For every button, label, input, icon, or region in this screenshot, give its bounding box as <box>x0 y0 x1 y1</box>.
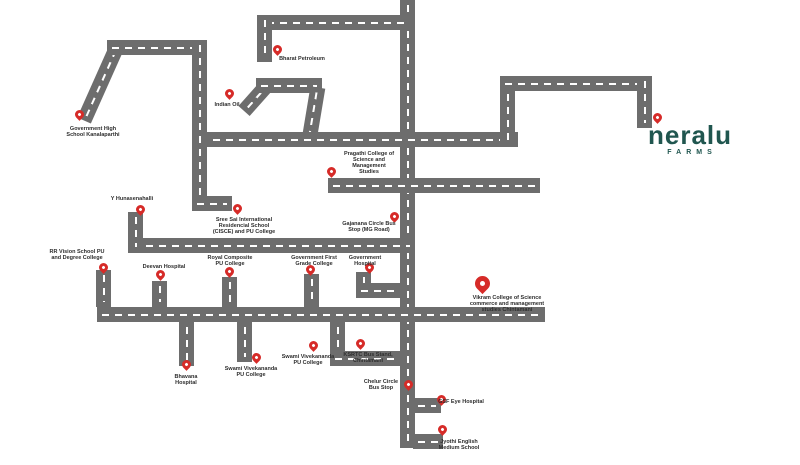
road-swami-vivekananda-spur <box>237 322 252 362</box>
label-bhavana-hospital: BhavanaHospital <box>175 374 198 386</box>
label-deevan-hospital: Deevan Hospital <box>143 264 186 270</box>
road-dash <box>261 85 317 87</box>
label-line: (CISCE) and PU College <box>213 229 275 235</box>
label-line: Medium School <box>439 445 480 451</box>
label-y-hunasenahalli: Y Hunasenahalli <box>111 196 153 202</box>
road-dash <box>229 282 231 302</box>
label-line: Studies <box>344 169 394 175</box>
label-rr-vision-school: RR Vision School PUand Degree College <box>50 249 105 261</box>
label-indian-oil: Indian Oil <box>214 102 239 108</box>
label-vikram-college: Vikram College of Sciencecommerce and ma… <box>470 295 544 313</box>
road-deevan-spur <box>152 281 167 307</box>
label-government-hospital: GovernmentHospital <box>349 255 381 267</box>
road-dash <box>309 92 318 136</box>
label-line: Hospital <box>175 380 198 386</box>
road-top-horizontal <box>262 15 415 30</box>
neralu-tagline: FARMS <box>638 149 742 156</box>
road-rr-vision-spur <box>96 270 111 307</box>
road-hunasenahalli-spur <box>128 212 143 252</box>
road-royal-composite-spur <box>222 277 237 307</box>
label-line: PU College <box>282 360 334 366</box>
label-line: GSF Eye Hospital <box>438 399 484 405</box>
road-dash <box>199 45 201 206</box>
road-dash <box>159 286 161 302</box>
label-line: and Degree College <box>50 255 105 261</box>
label-line: Grade College <box>291 261 337 267</box>
label-gajanana-circle-bus-stop: Gajanana Circle BusStop (MG Road) <box>342 221 396 233</box>
road-dash <box>361 290 397 292</box>
road-dash <box>418 441 438 443</box>
pin-pragathi-college[interactable] <box>325 165 338 178</box>
label-line: Chintamani <box>343 358 392 364</box>
road-dash <box>264 20 266 57</box>
label-line: Stop (MG Road) <box>342 227 396 233</box>
road-dash <box>102 314 540 316</box>
label-government-first-grade-college: Government FirstGrade College <box>291 255 337 267</box>
pin-indian-oil[interactable] <box>223 87 236 100</box>
road-dash <box>197 203 227 205</box>
pin-vikram-college[interactable] <box>471 273 492 294</box>
pin-swami-vivekananda-pu-college-east[interactable] <box>307 339 320 352</box>
label-swami-vivekananda-pu-college-west: Swami VivekanandaPU College <box>225 366 277 378</box>
road-dash <box>418 405 436 407</box>
label-line: studies Chintamani <box>470 307 544 313</box>
road-mg-road-horizontal <box>128 238 415 253</box>
road-sree-sai-foot <box>192 196 232 211</box>
label-line: Hospital <box>349 261 381 267</box>
road-dash <box>133 245 410 247</box>
road-west-vertical <box>192 40 207 211</box>
road-dash <box>135 217 137 247</box>
label-line: School Kanalaparthi <box>66 132 119 138</box>
road-northeast-horizontal <box>500 76 652 91</box>
pin-bharat-petroleum[interactable] <box>271 43 284 56</box>
road-dash <box>267 22 410 24</box>
road-dash <box>333 185 535 187</box>
label-sree-sai-school: Sree Sai InternationalResidencial School… <box>213 217 275 235</box>
road-dash <box>311 279 313 302</box>
neralu-logo: neralu FARMS <box>638 120 742 156</box>
label-line: PU College <box>208 261 253 267</box>
label-line: Deevan Hospital <box>143 264 186 270</box>
label-chelur-circle-bus-stop: Chelur CircleBus Stop <box>364 379 398 391</box>
label-swami-vivekananda-pu-college-east: Swami VivekanandaPU College <box>282 354 334 366</box>
road-main-horizontal-north <box>195 132 518 147</box>
label-ksrtc-bus-stand: KSRTC Bus Stand,Chintamani <box>343 352 392 364</box>
neralu-wordmark: neralu <box>638 120 742 150</box>
road-dash <box>200 139 513 141</box>
road-dash <box>505 83 647 85</box>
label-line: Y Hunasenahalli <box>111 196 153 202</box>
road-dash <box>186 327 188 361</box>
road-dash <box>103 275 105 302</box>
road-dash <box>85 50 116 116</box>
label-line: Bus Stop <box>364 385 398 391</box>
road-pragathi-horizontal <box>328 178 540 193</box>
road-dash <box>112 47 202 49</box>
label-line: Bharat Petroleum <box>279 56 325 62</box>
label-line: Indian Oil <box>214 102 239 108</box>
road-dash <box>644 81 646 123</box>
road-bharat-petroleum-spur <box>257 15 272 62</box>
label-bharat-petroleum: Bharat Petroleum <box>279 56 325 62</box>
pin-deevan-hospital[interactable] <box>154 268 167 281</box>
label-pragathi-college: Pragathi College ofScience andManagement… <box>344 151 394 175</box>
pin-ksrtc-bus-stand[interactable] <box>354 337 367 350</box>
label-jyothi-english-school: Jyothi EnglishMedium School <box>439 439 480 451</box>
label-royal-composite-college: Royal CompositePU College <box>208 255 253 267</box>
road-govt-hospital-link <box>356 283 402 298</box>
map-canvas: neralu FARMS Government HighSchool Kanal… <box>0 0 800 465</box>
label-gsf-eye-hospital: GSF Eye Hospital <box>438 399 484 405</box>
label-government-high-school: Government HighSchool Kanalaparthi <box>66 126 119 138</box>
label-line: PU College <box>225 372 277 378</box>
road-govt-first-grade-spur <box>304 274 319 307</box>
road-dash <box>407 5 409 443</box>
road-dash <box>244 327 246 357</box>
pin-sree-sai-school[interactable] <box>231 202 244 215</box>
